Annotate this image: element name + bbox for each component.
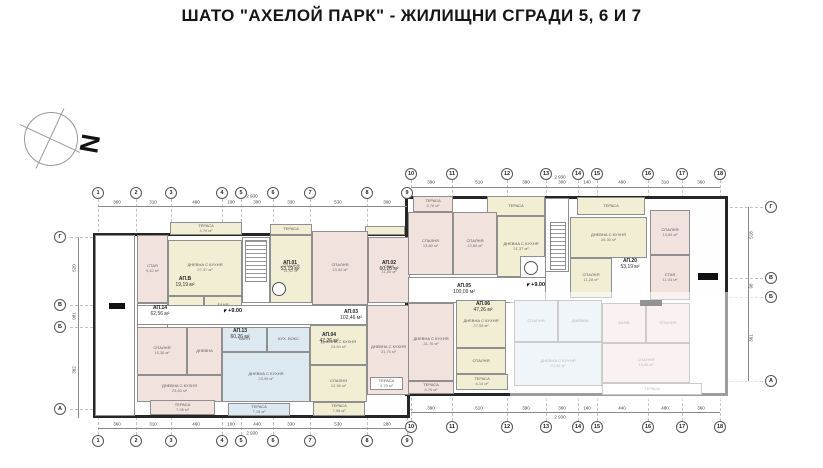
- grid-bubble-2: 2: [130, 187, 142, 199]
- room-area: 12,65 м²: [467, 244, 482, 249]
- room: ТЕРАСА: [577, 197, 645, 215]
- grid-bubble-5: 5: [235, 435, 247, 447]
- room-area: 13,80 м²: [423, 244, 438, 249]
- room: ТЕРАСА7,98 м²: [150, 400, 215, 415]
- grid-bubble-2: 2: [130, 435, 142, 447]
- floor-plan-sheet: ШАТО "АХЕЛОЙ ПАРК" - ЖИЛИЩНИ СГРАДИ 5, 6…: [0, 0, 823, 468]
- grid-bubble-6: 6: [267, 435, 279, 447]
- dimension-label: 981: [72, 312, 77, 320]
- dimension-label: 2 930: [246, 431, 257, 436]
- room: [95, 235, 135, 416]
- room: ТЕРАСА6,14 м²: [456, 374, 508, 390]
- apartment-area: 19,19 м²: [175, 282, 194, 288]
- dimension-label: 280: [383, 422, 391, 427]
- dimension-label: 2 930: [554, 175, 565, 180]
- dimension-label: 440: [253, 422, 261, 427]
- room-label: ТЕРАСА: [508, 204, 524, 209]
- apartment-label: АП.В19,19 м²: [175, 276, 194, 288]
- level-marker: +9.00: [527, 282, 545, 288]
- grid-bubble-10: 10: [405, 421, 417, 433]
- room: ТЕРАСА6,76 м²: [413, 196, 453, 212]
- room-area: 23,95 м²: [258, 377, 273, 382]
- grid-bubble-8: 8: [361, 435, 373, 447]
- elevator-wc-icon: [524, 261, 538, 275]
- room-area: 11,28 м²: [584, 278, 599, 283]
- room: СПАЛНЯ13,80 м²: [408, 212, 453, 275]
- dimension-line: [411, 412, 720, 413]
- grid-bubble-6: 6: [267, 187, 279, 199]
- room: ТЕРАСА7,18 м²: [228, 403, 290, 416]
- grid-bubble-12: 12: [501, 168, 513, 180]
- room-area: 23,63 м²: [172, 389, 187, 394]
- grid-letter-Б: Б: [54, 321, 66, 333]
- room-area: 7,18 м²: [253, 410, 266, 415]
- room: КУХ. БОКС: [267, 327, 310, 352]
- dimension-label: 440: [618, 406, 626, 411]
- apartment-label: АП.05100,09 м²: [453, 283, 475, 295]
- apartment-area: 60,26 м²: [230, 334, 249, 340]
- dimension-label: 360: [113, 200, 121, 205]
- room: ДНЕВНА С КУХНЯ24,64 м²: [310, 325, 367, 365]
- room-area: 7,98 м²: [333, 409, 346, 414]
- room-area: 13,42 м²: [332, 268, 347, 273]
- room: СПАЛНЯ13,84 м²: [650, 210, 690, 255]
- grid-bubble-13: 13: [540, 421, 552, 433]
- dimension-label: 330: [287, 200, 295, 205]
- dimension-line: [78, 237, 79, 418]
- dimension-label: 300: [383, 200, 391, 205]
- room: ДНЕВНА С КУХНЯ23,95 м²: [222, 352, 310, 402]
- dimension-label: 100: [227, 422, 235, 427]
- stairs: [245, 240, 267, 282]
- dimension-label: 310: [149, 422, 157, 427]
- dimension-label: 300: [558, 406, 566, 411]
- grid-bubble-11: 11: [446, 168, 458, 180]
- room-area: 11,04 м²: [663, 278, 678, 283]
- grid-bubble-9: 9: [401, 435, 413, 447]
- dimension-label: 98: [749, 283, 754, 288]
- wall-bar: [109, 303, 125, 309]
- room: СТАЯ9,42 м²: [137, 235, 168, 303]
- room-area: 15,36 м²: [154, 351, 169, 356]
- grid-bubble-16: 16: [642, 421, 654, 433]
- apartment-area: 53,19 м²: [280, 266, 299, 272]
- room: ДНЕВНА: [187, 327, 222, 375]
- room: ТЕРАСА: [270, 224, 312, 235]
- room-area: 31,76 м²: [381, 350, 396, 355]
- grid-bubble-15: 15: [591, 168, 603, 180]
- apartment-area: 53,19 м²: [620, 264, 639, 270]
- grid-bubble-9: 9: [401, 187, 413, 199]
- grid-bubble-18: 18: [714, 168, 726, 180]
- dimension-label: 390: [522, 180, 530, 185]
- room-area: 12,96 м²: [331, 384, 346, 389]
- dimension-label: 300: [253, 200, 261, 205]
- dimension-label: 530: [334, 200, 342, 205]
- room: ТЕРАСА4,79 м²: [170, 222, 242, 235]
- dimension-label: 530: [334, 422, 342, 427]
- watermark-overlay: [510, 292, 762, 400]
- grid-bubble-3: 3: [165, 187, 177, 199]
- apartment-label: АП.2053,19 м²: [620, 258, 639, 270]
- room-area: 4,79 м²: [200, 229, 213, 234]
- grid-bubble-3: 3: [165, 435, 177, 447]
- dimension-label: 310: [661, 180, 669, 185]
- dimension-label: 390: [427, 406, 435, 411]
- room-label: ДНЕВНА: [196, 349, 213, 354]
- room-label: СПАЛНЯ: [473, 359, 490, 364]
- grid-bubble-18: 18: [714, 421, 726, 433]
- dimension-label: 382: [72, 366, 77, 374]
- dimension-label: 100: [227, 200, 235, 205]
- apartment-label: АП.1462,56 м²: [150, 305, 169, 317]
- dimension-label: 390: [427, 180, 435, 185]
- apartment-label: АП.1360,26 м²: [230, 328, 249, 340]
- grid-bubble-1: 1: [92, 187, 104, 199]
- room: СПАЛНЯ15,36 м²: [137, 327, 187, 375]
- apartment-label: АП.0260,26 м²: [379, 260, 398, 272]
- dimension-label: 330: [287, 422, 295, 427]
- dimension-label: 510: [475, 406, 483, 411]
- dimension-label: 310: [149, 200, 157, 205]
- grid-bubble-13: 13: [540, 168, 552, 180]
- grid-letter-Г: Г: [54, 231, 66, 243]
- dimension-label: 360: [697, 406, 705, 411]
- grid-letter-А: А: [54, 403, 66, 415]
- grid-letter-Г: Г: [765, 201, 777, 213]
- dimension-label: 300: [558, 180, 566, 185]
- room-area: 21,37 м²: [513, 247, 528, 252]
- grid-letter-В: В: [765, 272, 777, 284]
- apartment-area: 47,26 м²: [319, 338, 338, 344]
- room: ТЕРАСА7,98 м²: [313, 402, 365, 416]
- room-area: 7,98 м²: [176, 408, 189, 413]
- room-area: 26,30 м²: [601, 238, 616, 243]
- room-area: 31,76 м²: [423, 342, 438, 347]
- dimension-label: 140: [583, 180, 591, 185]
- dimension-line: [98, 428, 407, 429]
- level-marker: +9.00: [224, 308, 242, 314]
- dimension-label: 361: [749, 334, 754, 342]
- grid-bubble-7: 7: [304, 187, 316, 199]
- grid-bubble-8: 8: [361, 187, 373, 199]
- grid-letter-Б: Б: [765, 291, 777, 303]
- room-area: 13,84 м²: [662, 233, 677, 238]
- room: СПАЛНЯ12,96 м²: [310, 365, 367, 402]
- wall-bar: [698, 273, 718, 280]
- room-label: ТЕРАСА: [603, 204, 619, 209]
- apartment-area: 100,09 м²: [453, 289, 475, 295]
- grid-bubble-17: 17: [676, 421, 688, 433]
- apartment-area: 47,26 м²: [473, 307, 492, 313]
- room: [137, 305, 367, 325]
- grid-bubble-14: 14: [572, 421, 584, 433]
- page-title: ШАТО "АХЕЛОЙ ПАРК" - ЖИЛИЩНИ СГРАДИ 5, 6…: [0, 6, 823, 26]
- dimension-label: 360: [697, 180, 705, 185]
- room: СПАЛНЯ: [456, 348, 506, 374]
- room-label: КУХ. БОКС: [278, 337, 299, 342]
- dimension-line: [98, 206, 407, 207]
- apartment-label: АП.0153,19 м²: [280, 260, 299, 272]
- room: СПАЛНЯ13,42 м²: [312, 231, 368, 305]
- room-label: ТЕРАСА: [283, 227, 299, 232]
- room-area: 9,42 м²: [146, 269, 159, 274]
- dimension-label: 480: [661, 406, 669, 411]
- dimension-label: 460: [192, 422, 200, 427]
- dimension-label: 2 930: [246, 194, 257, 199]
- grid-bubble-5: 5: [235, 187, 247, 199]
- stairs: [550, 222, 566, 270]
- room: ДНЕВНА С КУХНЯ23,63 м²: [137, 375, 222, 402]
- grid-bubble-1: 1: [92, 435, 104, 447]
- room: ДНЕВНА С КУХНЯ26,30 м²: [570, 217, 647, 258]
- room-area: 27,55 м²: [473, 324, 488, 329]
- grid-bubble-12: 12: [501, 421, 513, 433]
- dimension-label: 490: [618, 180, 626, 185]
- grid-bubble-10: 10: [405, 168, 417, 180]
- dimension-line: [411, 187, 720, 188]
- grid-bubble-4: 4: [216, 187, 228, 199]
- dimension-label: 360: [113, 422, 121, 427]
- apartment-area: 102,46 м²: [340, 315, 362, 321]
- grid-bubble-15: 15: [591, 421, 603, 433]
- room-area: 6,76 м²: [425, 388, 438, 393]
- room-area: 6,76 м²: [427, 204, 440, 209]
- grid-letter-В: В: [54, 299, 66, 311]
- dimension-label: 520: [72, 264, 77, 272]
- dimension-label: 390: [522, 406, 530, 411]
- grid-bubble-14: 14: [572, 168, 584, 180]
- dimension-label: 140: [583, 406, 591, 411]
- room: ДНЕВНА С КУХНЯ31,76 м²: [408, 303, 454, 381]
- room-area: 24,64 м²: [331, 345, 346, 350]
- room: СПАЛНЯ12,65 м²: [453, 212, 497, 275]
- grid-bubble-7: 7: [304, 435, 316, 447]
- grid-bubble-17: 17: [676, 168, 688, 180]
- room: ТЕРАСА4,79 м²: [370, 377, 403, 390]
- dimension-label: 2 930: [554, 415, 565, 420]
- room-area: 6,14 м²: [476, 382, 489, 387]
- dimension-label: 510: [475, 180, 483, 185]
- apartment-label: АП.0647,26 м²: [473, 301, 492, 313]
- grid-bubble-4: 4: [216, 435, 228, 447]
- grid-letter-А: А: [765, 375, 777, 387]
- room-area: 4,79 м²: [380, 384, 393, 389]
- elevator-wc-icon: [272, 282, 286, 296]
- dimension-label: 460: [192, 200, 200, 205]
- grid-bubble-16: 16: [642, 168, 654, 180]
- dimension-label: 518: [749, 231, 754, 239]
- apartment-label: АП.03102,46 м²: [340, 309, 362, 321]
- room: ТЕРАСА6,76 м²: [408, 381, 454, 394]
- apartment-area: 62,56 м²: [150, 311, 169, 317]
- apartment-label: АП.0447,26 м²: [319, 332, 338, 344]
- room-area: 27,37 м²: [197, 268, 212, 273]
- grid-bubble-11: 11: [446, 421, 458, 433]
- room: [365, 226, 405, 235]
- apartment-area: 60,26 м²: [379, 266, 398, 272]
